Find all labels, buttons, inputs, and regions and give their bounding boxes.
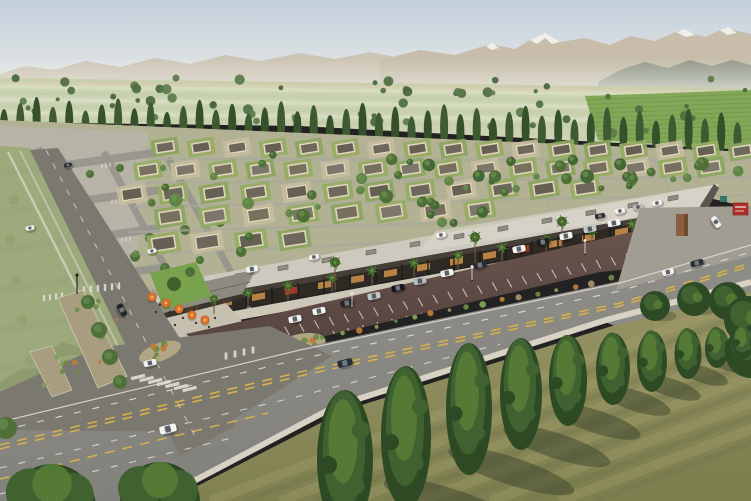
scene-canvas [0, 0, 751, 501]
aerial-render-image [0, 0, 751, 501]
